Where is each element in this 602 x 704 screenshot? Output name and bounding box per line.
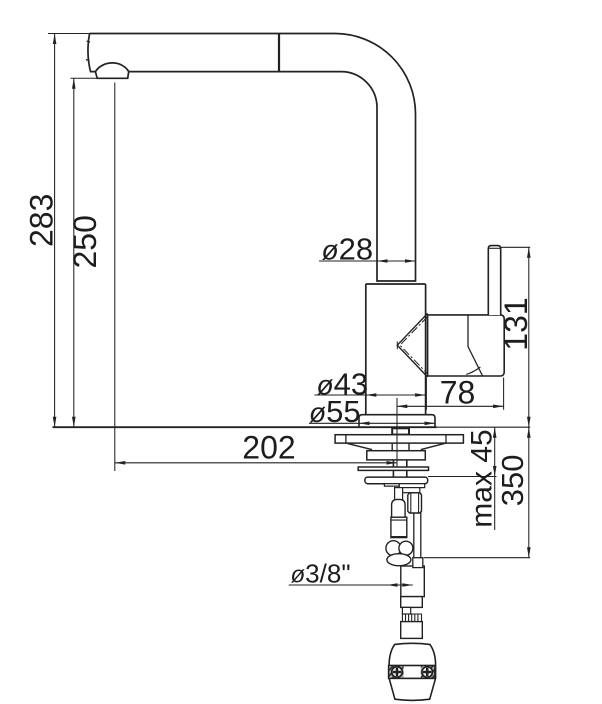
- svg-text:max 45: max 45: [466, 429, 499, 527]
- svg-text:78: 78: [440, 374, 476, 410]
- svg-text:350: 350: [495, 455, 530, 507]
- svg-text:202: 202: [242, 430, 295, 466]
- svg-text:ø55: ø55: [309, 394, 361, 429]
- svg-text:ø3/8": ø3/8": [291, 559, 351, 589]
- svg-text:131: 131: [498, 297, 534, 350]
- svg-text:250: 250: [67, 215, 103, 268]
- svg-text:283: 283: [24, 194, 60, 247]
- svg-text:ø28: ø28: [322, 232, 374, 267]
